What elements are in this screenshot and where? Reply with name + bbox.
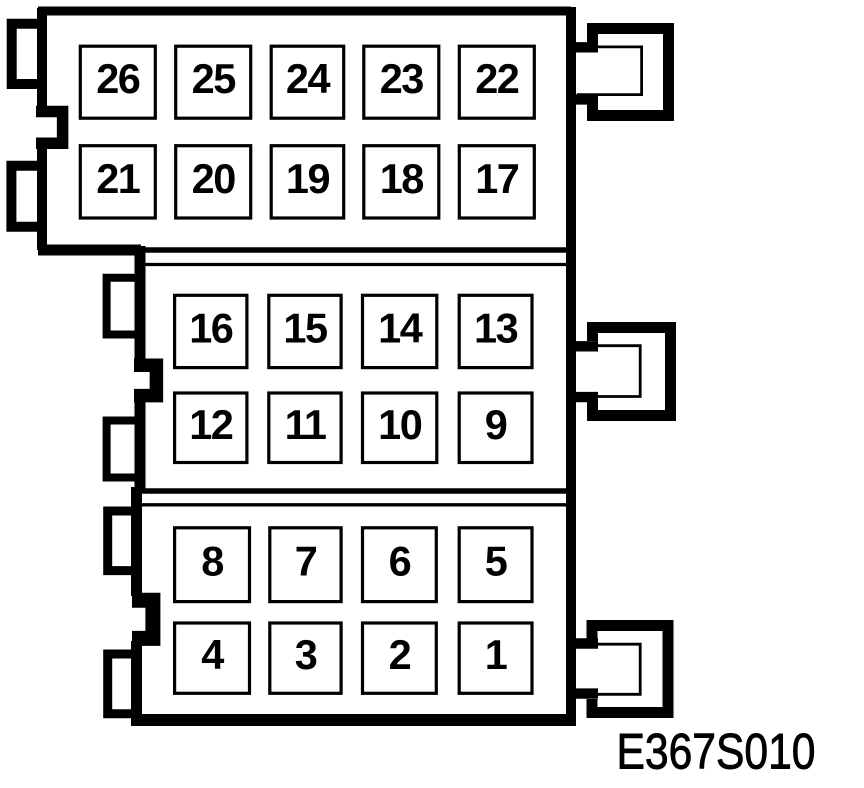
svg-text:12: 12 [189, 401, 233, 448]
svg-text:22: 22 [475, 55, 519, 102]
svg-text:8: 8 [201, 538, 223, 585]
svg-text:24: 24 [286, 55, 331, 102]
svg-text:5: 5 [485, 538, 507, 585]
svg-text:16: 16 [189, 305, 233, 352]
svg-text:13: 13 [474, 305, 518, 352]
svg-text:3: 3 [295, 631, 317, 678]
svg-text:21: 21 [96, 155, 140, 202]
svg-text:25: 25 [192, 55, 236, 102]
svg-text:2: 2 [389, 631, 411, 678]
svg-text:17: 17 [475, 155, 519, 202]
svg-text:E367S010: E367S010 [617, 723, 816, 780]
svg-text:4: 4 [201, 631, 224, 678]
svg-text:11: 11 [285, 401, 326, 448]
svg-text:6: 6 [389, 538, 411, 585]
svg-text:19: 19 [286, 155, 330, 202]
svg-text:15: 15 [283, 305, 327, 352]
svg-text:10: 10 [378, 401, 422, 448]
svg-text:9: 9 [485, 401, 507, 448]
svg-text:20: 20 [192, 155, 236, 202]
svg-text:23: 23 [380, 55, 424, 102]
svg-text:7: 7 [295, 538, 317, 585]
svg-text:18: 18 [380, 155, 424, 202]
svg-text:14: 14 [378, 305, 423, 352]
svg-text:1: 1 [485, 631, 507, 678]
svg-text:26: 26 [96, 55, 140, 102]
